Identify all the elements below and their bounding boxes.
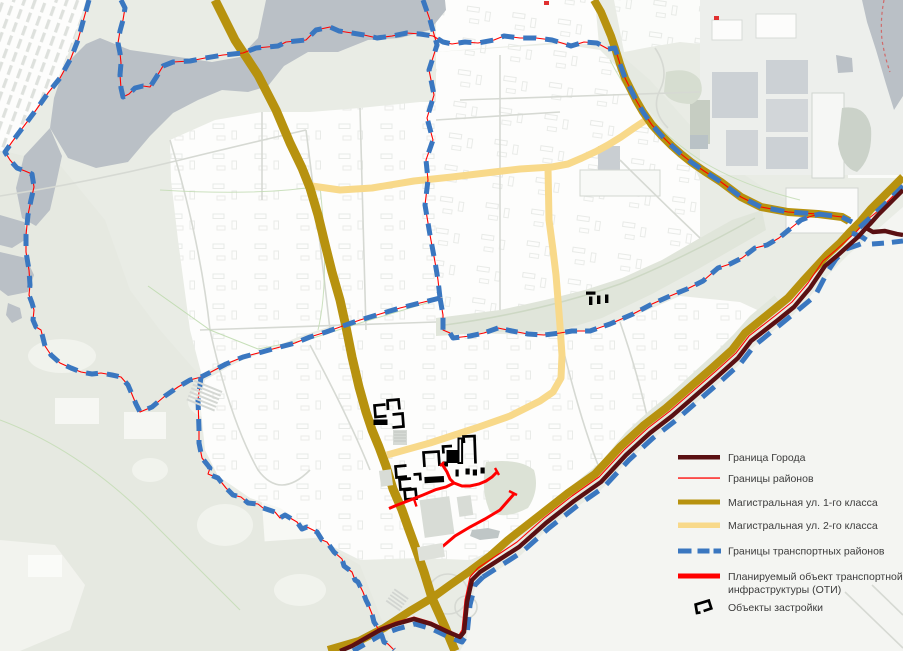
svg-text:Границы районов: Границы районов [728, 473, 814, 485]
svg-text:Граница Города: Граница Города [728, 452, 806, 464]
svg-text:Магистральная ул. 2-го класса: Магистральная ул. 2-го класса [728, 520, 878, 532]
svg-text:Объекты застройки: Объекты застройки [728, 602, 823, 614]
svg-text:Магистральная ул. 1-го класса: Магистральная ул. 1-го класса [728, 497, 878, 509]
svg-text:инфраструктуры (ОТИ): инфраструктуры (ОТИ) [728, 584, 841, 596]
svg-text:Границы транспортных районов: Границы транспортных районов [728, 546, 885, 558]
svg-text:Планируемый объект транспортно: Планируемый объект транспортной [728, 571, 903, 583]
